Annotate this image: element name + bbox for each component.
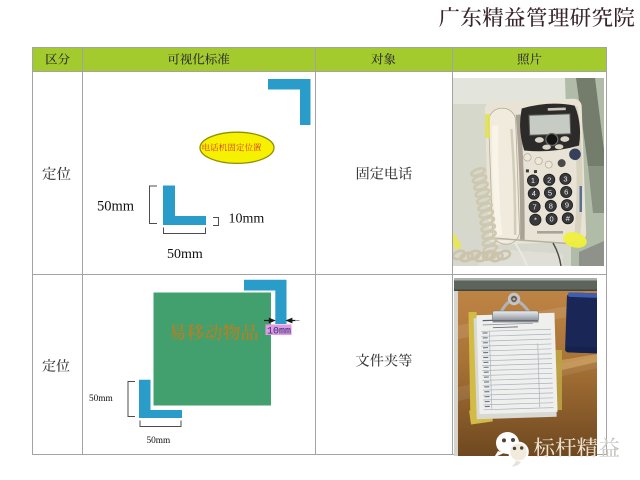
svg-text:10mm: 10mm — [229, 212, 265, 227]
svg-text:6: 6 — [564, 188, 568, 197]
svg-text:50mm: 50mm — [167, 247, 203, 262]
svg-text:4: 4 — [532, 189, 536, 198]
svg-text:1: 1 — [531, 176, 535, 185]
svg-text:*: * — [534, 215, 537, 224]
svg-text:10mm: 10mm — [267, 327, 291, 338]
svg-text:8: 8 — [549, 202, 553, 211]
svg-text:9: 9 — [565, 201, 569, 210]
svg-text:7: 7 — [533, 202, 537, 211]
svg-text:0: 0 — [550, 215, 554, 224]
svg-text:50mm: 50mm — [97, 199, 135, 215]
svg-text:5: 5 — [548, 188, 552, 197]
svg-text:3: 3 — [563, 175, 567, 184]
svg-text:50mm: 50mm — [89, 394, 114, 404]
svg-text:50mm: 50mm — [147, 436, 172, 446]
svg-text:2: 2 — [547, 175, 551, 184]
